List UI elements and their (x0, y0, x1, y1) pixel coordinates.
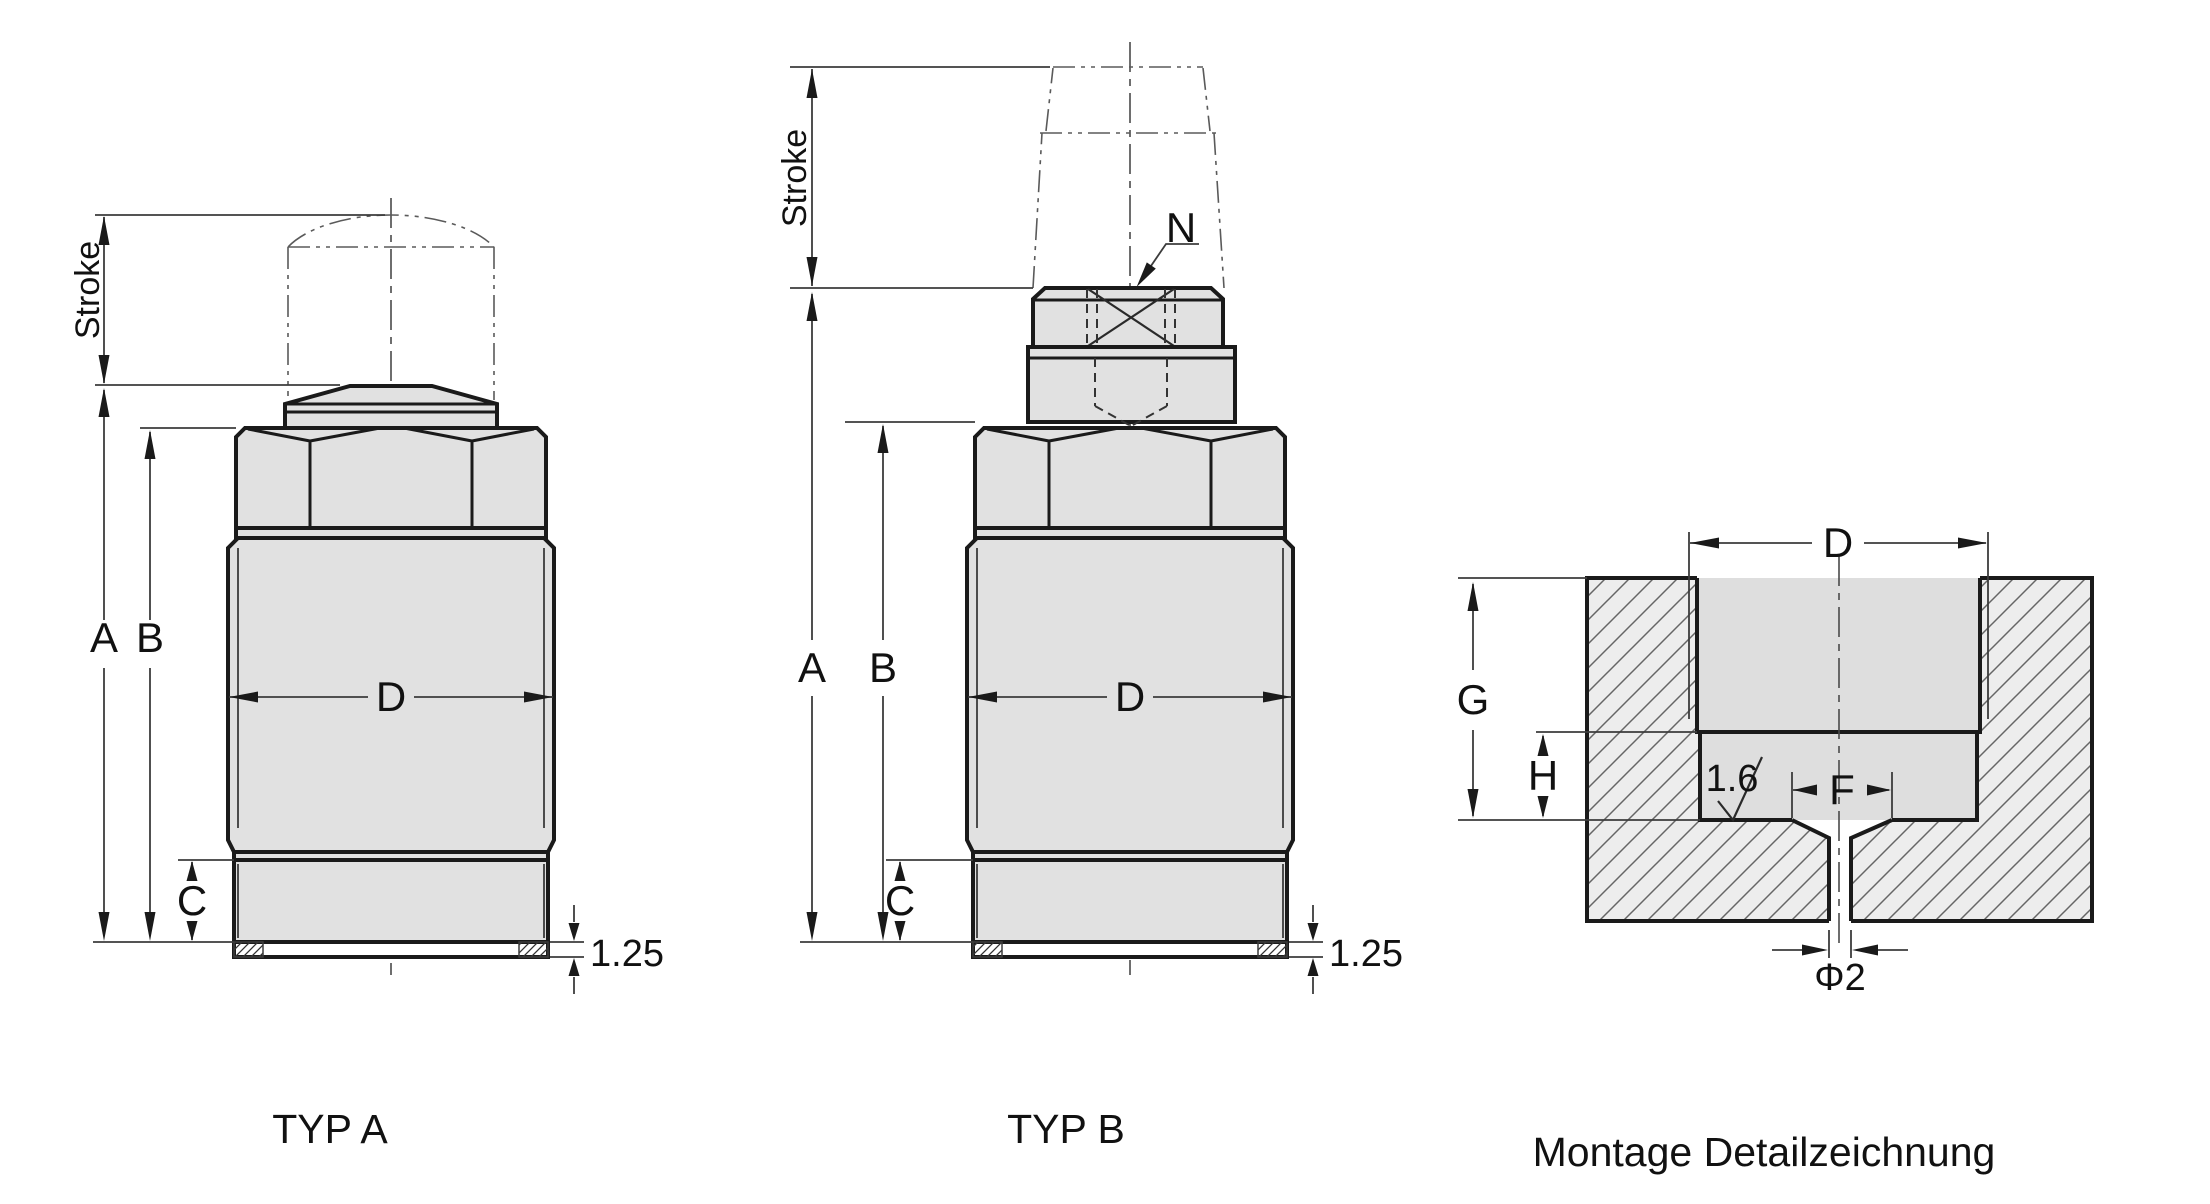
mounting-detail-figure: D G H F 1.6 Φ2 (1457, 519, 2092, 999)
typ-b-label-a: A (798, 644, 826, 691)
typ-a-caption-title: TYP A (130, 1106, 530, 1152)
typ-a-stroke-label: Stroke (69, 241, 107, 339)
typ-a-round-head (285, 386, 497, 428)
typ-a-label-c: C (177, 877, 207, 924)
typ-b-figure: Stroke N A B C D 1.25 (776, 42, 1403, 994)
typ-a-label-d: D (376, 673, 406, 720)
typ-b-base-strip (973, 942, 1287, 957)
mounting-label-g: G (1457, 676, 1490, 723)
mounting-caption: Montage Detailzeichnung Mounting Dimensi… (1514, 1040, 2014, 1204)
typ-a-body (228, 538, 554, 942)
typ-a-label-a: A (90, 614, 118, 661)
typ-b-base-hatch-left (973, 942, 1002, 957)
typ-b-caption: TYP B mit Gewindekopf / threaded top typ… (866, 1014, 1266, 1204)
typ-b-extended-position-outline (1033, 67, 1224, 288)
typ-a-base-strip (234, 942, 548, 957)
typ-b-label-base-thickness: 1.25 (1329, 933, 1403, 975)
typ-b-label-n: N (1166, 204, 1196, 251)
typ-a-hex-nut (236, 428, 546, 528)
typ-b-stroke-label: Stroke (776, 129, 814, 227)
typ-a-label-b: B (136, 614, 164, 661)
mounting-label-roughness: 1.6 (1706, 758, 1759, 800)
mounting-label-hole-diameter: Φ2 (1814, 957, 1865, 999)
typ-a-figure: Stroke A B C D 1.25 (69, 198, 664, 994)
typ-a-base-hatch-right (519, 942, 548, 957)
typ-b-threaded-head (1033, 288, 1223, 347)
typ-b-label-d: D (1115, 673, 1145, 720)
typ-b-hex-nut (975, 428, 1285, 528)
mounting-caption-german: Montage Detailzeichnung (1514, 1130, 2014, 1175)
mounting-label-h: H (1528, 752, 1558, 799)
typ-b-base-hatch-right (1258, 942, 1287, 957)
typ-a-label-base-thickness: 1.25 (590, 933, 664, 975)
mounting-label-d: D (1823, 519, 1853, 566)
typ-b-n-leader-arrowhead (1137, 262, 1156, 287)
mounting-label-f: F (1829, 766, 1855, 813)
typ-b-label-b: B (869, 644, 897, 691)
typ-b-label-c: C (885, 877, 915, 924)
typ-a-base-hatch-left (234, 942, 263, 957)
technical-drawing-page: Stroke A B C D 1.25 (0, 0, 2210, 1204)
typ-a-caption: TYP A mit Rundkopf / round top type (130, 1014, 530, 1204)
typ-b-body (967, 538, 1293, 942)
typ-b-caption-title: TYP B (866, 1106, 1266, 1152)
